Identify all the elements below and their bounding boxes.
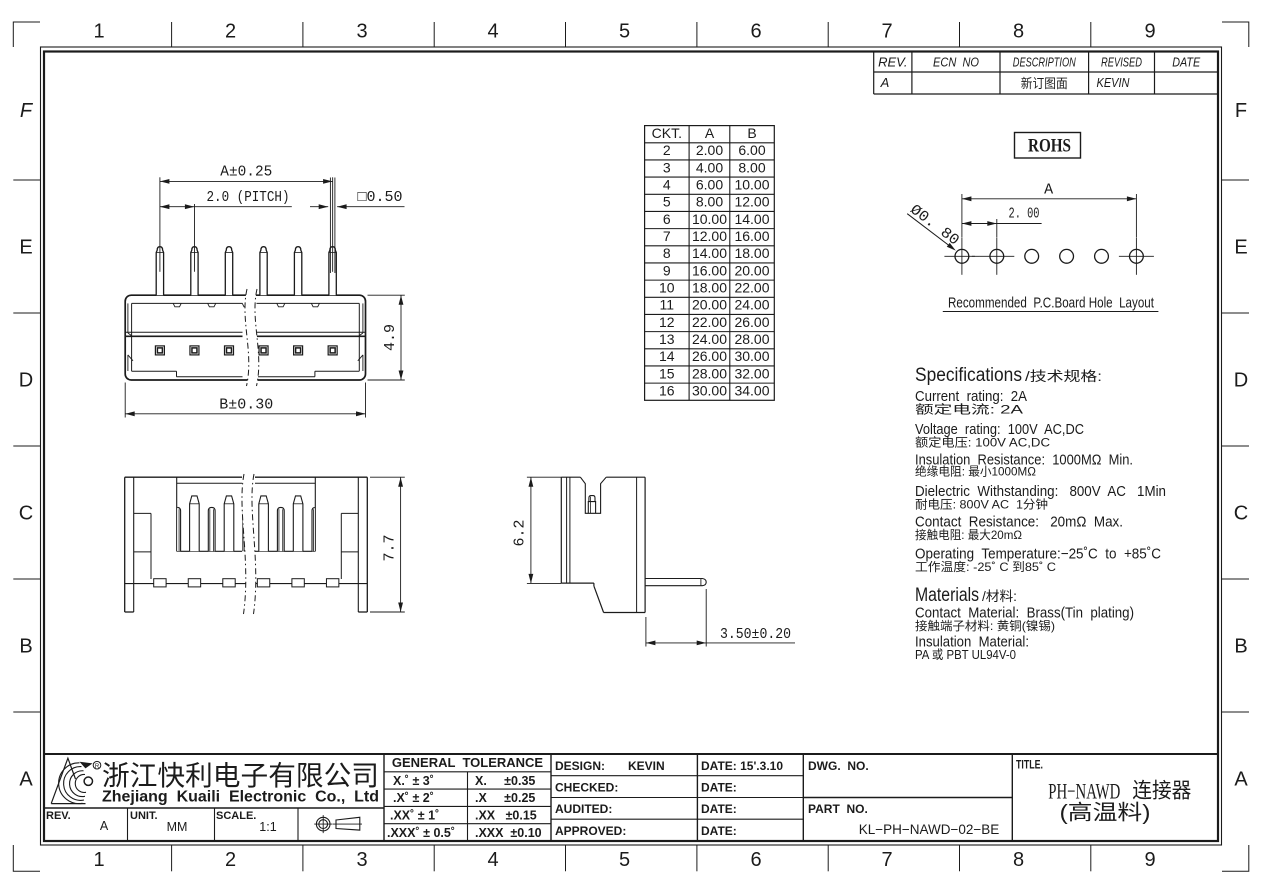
svg-text:5: 5 <box>619 21 630 43</box>
svg-text:CKT.: CKT. <box>652 125 682 141</box>
svg-text:6: 6 <box>663 211 671 227</box>
svg-text:D: D <box>1234 370 1248 392</box>
svg-text:A: A <box>880 75 890 90</box>
svg-text:5: 5 <box>619 849 630 871</box>
svg-text:A: A <box>100 819 109 833</box>
svg-text:A±0.25: A±0.25 <box>220 164 272 181</box>
svg-text:KEVIN: KEVIN <box>1097 75 1131 90</box>
svg-text:8: 8 <box>1013 849 1024 871</box>
svg-text:F: F <box>20 100 34 122</box>
svg-text:.XXX ±0.10: .XXX ±0.10 <box>475 826 542 840</box>
svg-text:16.00: 16.00 <box>692 262 727 278</box>
svg-text:R: R <box>95 764 100 770</box>
svg-text:3: 3 <box>663 159 671 175</box>
svg-text:2. 00: 2. 00 <box>1009 206 1040 223</box>
svg-text:接触电阻: 最大20mΩ: 接触电阻: 最大20mΩ <box>915 527 1022 542</box>
svg-text:.X˚ ± 2˚: .X˚ ± 2˚ <box>393 791 434 805</box>
svg-text:2: 2 <box>225 849 236 871</box>
svg-text:20.00: 20.00 <box>692 297 727 313</box>
svg-text:/材料:: /材料: <box>982 589 1017 604</box>
svg-text:ECN NO: ECN NO <box>933 55 979 70</box>
svg-text:D: D <box>19 370 33 392</box>
svg-text:22.00: 22.00 <box>734 280 769 296</box>
svg-text:12: 12 <box>659 314 675 330</box>
svg-text:额定电流: 2A: 额定电流: 2A <box>915 402 1023 417</box>
svg-text:6: 6 <box>750 21 761 43</box>
svg-text:5: 5 <box>663 194 671 210</box>
svg-text:16.00: 16.00 <box>734 228 769 244</box>
svg-text:A: A <box>1044 182 1053 199</box>
svg-text:30.00: 30.00 <box>734 348 769 364</box>
svg-text:24.00: 24.00 <box>734 297 769 313</box>
svg-text:9: 9 <box>1144 849 1155 871</box>
svg-text:9: 9 <box>663 262 671 278</box>
svg-text:28.00: 28.00 <box>692 365 727 381</box>
svg-text:连接器: 连接器 <box>1132 780 1191 803</box>
svg-text:26.00: 26.00 <box>692 348 727 364</box>
svg-text:14.00: 14.00 <box>692 245 727 261</box>
svg-text:14: 14 <box>659 348 675 364</box>
svg-text:KEVIN: KEVIN <box>628 759 665 773</box>
svg-text:工作温度: -25˚ C 到85˚ C: 工作温度: -25˚ C 到85˚ C <box>915 559 1056 574</box>
svg-text:AUDITED:: AUDITED: <box>555 802 612 816</box>
svg-text:22.00: 22.00 <box>692 314 727 330</box>
svg-text:7: 7 <box>881 21 892 43</box>
svg-text:8.00: 8.00 <box>738 159 765 175</box>
svg-text:F: F <box>1235 100 1247 122</box>
svg-text:13: 13 <box>659 331 675 347</box>
svg-text:CHECKED:: CHECKED: <box>555 781 618 795</box>
svg-text:30.00: 30.00 <box>692 383 727 399</box>
svg-text:14.00: 14.00 <box>734 211 769 227</box>
svg-text:Specifications: Specifications <box>915 365 1022 386</box>
svg-text:7.7: 7.7 <box>381 534 398 561</box>
svg-text:DATE:: DATE: <box>701 781 737 795</box>
svg-text:6: 6 <box>750 849 761 871</box>
svg-text:ROHS: ROHS <box>1028 136 1071 157</box>
svg-text:APPROVED:: APPROVED: <box>555 824 626 838</box>
svg-text:绝缘电阻: 最小1000MΩ: 绝缘电阻: 最小1000MΩ <box>915 464 1036 479</box>
svg-text:6.2: 6.2 <box>511 519 528 546</box>
svg-text:2: 2 <box>225 21 236 43</box>
svg-text:8: 8 <box>1013 21 1024 43</box>
svg-text:B: B <box>19 636 32 658</box>
svg-text:UNIT.: UNIT. <box>130 810 158 822</box>
svg-text:7: 7 <box>663 228 671 244</box>
svg-text:4.9: 4.9 <box>382 324 399 351</box>
svg-text:B: B <box>1234 636 1247 658</box>
svg-text:GENERAL TOLERANCE: GENERAL TOLERANCE <box>392 755 544 770</box>
svg-text:E: E <box>19 237 32 259</box>
svg-text:11: 11 <box>660 297 675 313</box>
svg-text:Recommended P.C.Board Hole L: Recommended P.C.Board Hole Layout <box>948 296 1154 312</box>
svg-text:DATE:: DATE: <box>701 824 737 838</box>
svg-text:C: C <box>19 503 33 525</box>
svg-text:DWG. NO.: DWG. NO. <box>808 759 869 773</box>
svg-text:15: 15 <box>659 365 675 381</box>
svg-text:REV.: REV. <box>46 810 71 822</box>
svg-text:12.00: 12.00 <box>692 228 727 244</box>
svg-text:2: 2 <box>663 142 671 158</box>
svg-text:C: C <box>1234 503 1248 525</box>
svg-text:耐电压: 800V AC 1分钟: 耐电压: 800V AC 1分钟 <box>915 497 1048 512</box>
svg-text:Zhejiang Kuaili Electronic: Zhejiang Kuaili Electronic Co., Ltd <box>102 789 379 806</box>
svg-text:浙江快利电子有限公司: 浙江快利电子有限公司 <box>102 760 379 791</box>
svg-text:18.00: 18.00 <box>734 245 769 261</box>
svg-text:28.00: 28.00 <box>734 331 769 347</box>
svg-text:REVISED: REVISED <box>1101 55 1142 70</box>
svg-text:3: 3 <box>356 849 367 871</box>
svg-text:.XXX˚ ± 0.5˚: .XXX˚ ± 0.5˚ <box>387 826 455 840</box>
svg-text:4: 4 <box>487 21 498 43</box>
svg-text:10.00: 10.00 <box>692 211 727 227</box>
svg-text:.XX ±0.15: .XX ±0.15 <box>475 809 537 823</box>
svg-text:8.00: 8.00 <box>696 194 723 210</box>
svg-text:PART NO.: PART NO. <box>808 802 868 816</box>
svg-text:3: 3 <box>356 21 367 43</box>
svg-text:26.00: 26.00 <box>734 314 769 330</box>
svg-text:2.0 (PITCH): 2.0 (PITCH) <box>207 189 290 206</box>
svg-text:A: A <box>19 769 33 791</box>
svg-text:20.00: 20.00 <box>734 262 769 278</box>
svg-text:B: B <box>747 125 756 141</box>
svg-text:.XX˚ ± 1˚: .XX˚ ± 1˚ <box>390 809 439 823</box>
svg-text:4: 4 <box>663 177 671 193</box>
svg-text:SCALE.: SCALE. <box>216 810 256 822</box>
svg-text:6.00: 6.00 <box>696 177 723 193</box>
svg-text:10: 10 <box>659 280 675 296</box>
svg-text:1: 1 <box>93 21 104 43</box>
svg-text:3.50±0.20: 3.50±0.20 <box>720 626 791 643</box>
svg-text:□0.50: □0.50 <box>358 189 403 206</box>
svg-text:18.00: 18.00 <box>692 280 727 296</box>
svg-text:.X ±0.25: .X ±0.25 <box>475 791 535 805</box>
svg-text:DESIGN:: DESIGN: <box>555 759 605 773</box>
svg-text:额定电压: 100V AC,DC: 额定电压: 100V AC,DC <box>915 435 1050 450</box>
svg-text:X.˚ ± 3˚: X.˚ ± 3˚ <box>393 774 434 788</box>
svg-text:DATE: 15'.3.10: DATE: 15'.3.10 <box>701 759 783 773</box>
svg-text:Ø0. 80: Ø0. 80 <box>906 201 962 249</box>
svg-text:DATE: DATE <box>1172 55 1200 70</box>
svg-text:2.00: 2.00 <box>696 142 723 158</box>
svg-text:MM: MM <box>167 820 188 834</box>
svg-text:PA 或 PBT UL94V-0: PA 或 PBT UL94V-0 <box>915 648 1016 662</box>
svg-text:/技术规格:: /技术规格: <box>1025 369 1102 384</box>
svg-text:A: A <box>705 125 715 141</box>
svg-text:DATE:: DATE: <box>701 802 737 816</box>
svg-text:KL−PH−NAWD−02−BE: KL−PH−NAWD−02−BE <box>859 822 1000 837</box>
svg-text:REV.: REV. <box>878 55 907 70</box>
svg-text:(高温料): (高温料) <box>1060 802 1151 825</box>
svg-text:接触端子材料: 黄铜(镍锡): 接触端子材料: 黄铜(镍锡) <box>915 618 1055 633</box>
svg-text:10.00: 10.00 <box>734 177 769 193</box>
svg-text:DESCRIPTION: DESCRIPTION <box>1013 55 1076 70</box>
svg-text:6.00: 6.00 <box>738 142 765 158</box>
svg-text:4.00: 4.00 <box>696 159 723 175</box>
svg-text:8: 8 <box>663 245 671 261</box>
svg-text:X. ±0.35: X. ±0.35 <box>475 774 535 788</box>
svg-text:新订图面: 新订图面 <box>1021 76 1068 91</box>
svg-text:Materials: Materials <box>915 585 979 606</box>
svg-text:9: 9 <box>1144 21 1155 43</box>
svg-text:12.00: 12.00 <box>734 194 769 210</box>
svg-text:B±0.30: B±0.30 <box>219 397 273 414</box>
svg-text:1:1: 1:1 <box>259 820 276 834</box>
svg-text:7: 7 <box>881 849 892 871</box>
svg-text:32.00: 32.00 <box>734 365 769 381</box>
svg-text:A: A <box>1234 769 1248 791</box>
svg-text:24.00: 24.00 <box>692 331 727 347</box>
svg-text:PH−NAWD: PH−NAWD <box>1048 779 1120 804</box>
svg-text:TITLE.: TITLE. <box>1016 758 1043 772</box>
svg-text:16: 16 <box>659 383 675 399</box>
svg-text:34.00: 34.00 <box>734 383 769 399</box>
svg-text:4: 4 <box>487 849 498 871</box>
svg-text:E: E <box>1234 237 1247 259</box>
svg-text:1: 1 <box>93 849 104 871</box>
